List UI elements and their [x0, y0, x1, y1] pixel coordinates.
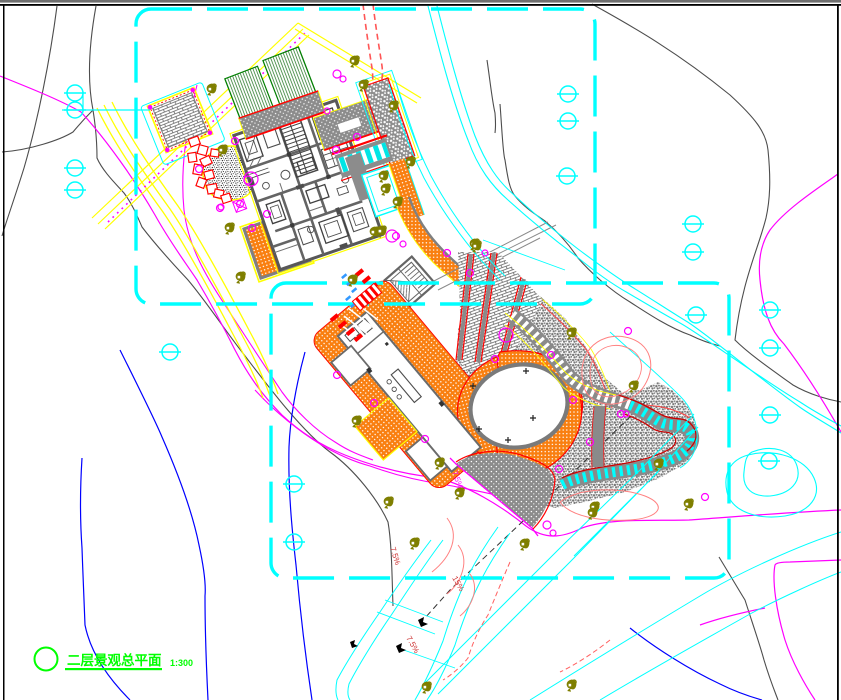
- svg-text:1:300: 1:300: [170, 658, 193, 668]
- svg-text:二层景观总平面: 二层景观总平面: [67, 652, 162, 668]
